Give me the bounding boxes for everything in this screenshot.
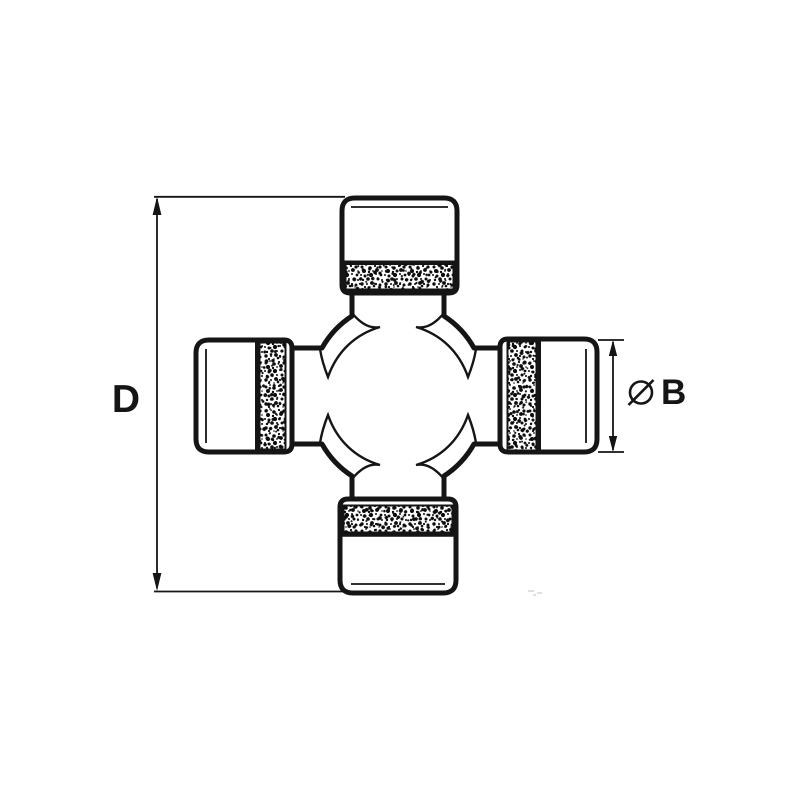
arrowhead-down-icon <box>153 573 162 591</box>
crescent-lower-right <box>416 415 476 479</box>
crescent-lower-left <box>320 415 380 479</box>
arrowhead-b-up-icon <box>609 340 617 356</box>
seal-band-left-texture <box>260 343 286 450</box>
bearing-cup-top <box>342 198 457 293</box>
bearing-cup-right <box>500 339 597 452</box>
arrowhead-b-down-icon <box>609 436 617 452</box>
scan-artifact <box>528 591 542 595</box>
arm-outline-upper-right <box>444 291 502 348</box>
fillet-crescents <box>320 313 476 479</box>
seal-band-right-texture <box>508 342 537 451</box>
seal-band-top-texture <box>346 264 454 290</box>
dimension-b <box>598 340 624 452</box>
arm-outline-upper-left <box>290 291 352 348</box>
u-joint-cross-drawing: D B <box>0 0 800 800</box>
label-dim-b: B <box>661 373 686 412</box>
technical-drawing-canvas: D B <box>0 0 800 800</box>
crescent-upper-right <box>416 313 476 377</box>
cross-body <box>290 291 502 499</box>
bearing-cup-bottom <box>340 499 456 593</box>
label-dim-d: D <box>112 378 140 421</box>
bearing-cup-left <box>196 340 292 452</box>
diameter-symbol-icon <box>629 380 654 405</box>
arm-outline-lower-left <box>290 444 352 499</box>
arrowhead-up-icon <box>153 197 162 215</box>
arm-outline-lower-right <box>444 444 502 499</box>
crescent-upper-left <box>320 313 380 377</box>
seal-band-bottom-texture <box>344 506 453 533</box>
